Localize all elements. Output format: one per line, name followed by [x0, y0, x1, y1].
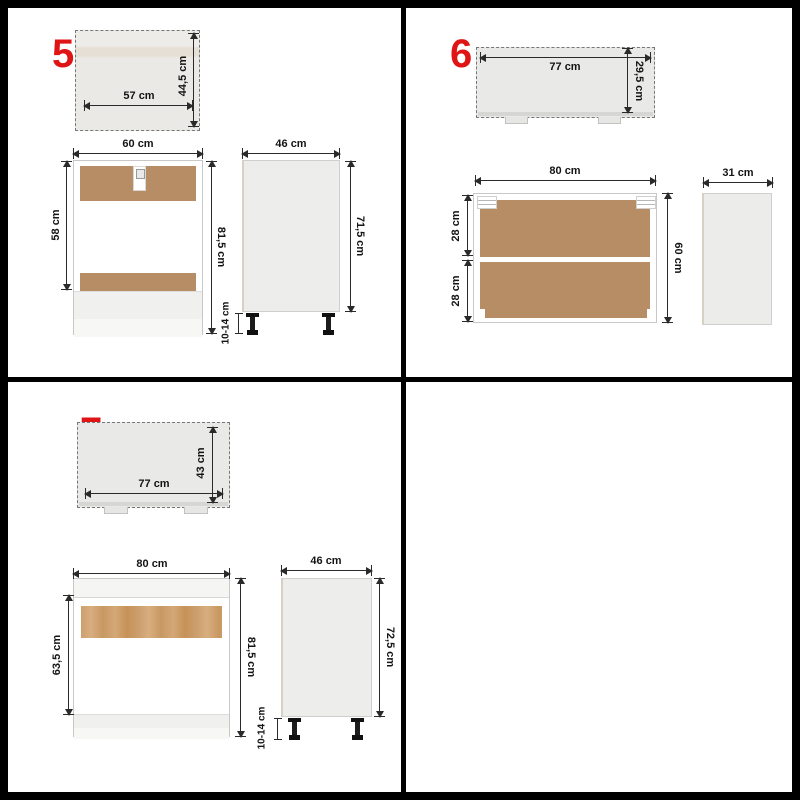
dim-arrow-height-front5	[211, 161, 212, 334]
corner-notch	[480, 309, 485, 318]
dim-bracket-legs7	[277, 718, 278, 740]
adjustable-leg	[322, 313, 335, 335]
dim-label-width-front5: 60 cm	[122, 138, 153, 150]
dim-arrow-height-front7	[240, 578, 241, 737]
dim-label-legs5: 10-14 cm	[221, 302, 232, 345]
dim-label-lower-front6: 28 cm	[450, 275, 462, 306]
diagram-sheet: 5 57 cm 44,5 cm 60 cm 58 cm 81,5 cm 46 c…	[0, 0, 800, 800]
dim-arrow-depth-top6	[627, 48, 628, 113]
dim-label-height-front5: 81,5 cm	[215, 227, 227, 267]
wall-bracket	[505, 117, 528, 124]
adjustable-leg	[351, 718, 364, 740]
divider-horizontal	[8, 377, 792, 382]
dim-label-upper-front6: 28 cm	[450, 210, 462, 241]
front-view-7	[73, 578, 230, 737]
wood-panel-front7	[81, 606, 222, 638]
dim-arrow-depth-side6	[703, 182, 773, 183]
dim-arrow-width-top5	[84, 105, 193, 106]
adjustable-leg	[288, 718, 301, 740]
hinge-plate-icon	[636, 196, 656, 209]
dim-label-depth-top5: 44,5 cm	[177, 56, 189, 96]
dim-label-depth-side6: 31 cm	[722, 167, 753, 179]
dim-label-height-side5: 71,5 cm	[354, 216, 366, 256]
dim-arrow-depth-side7	[281, 570, 372, 571]
adjustable-leg	[246, 313, 259, 335]
dim-arrow-carcass-front5	[66, 161, 67, 290]
dim-arrow-depth-side5	[242, 153, 340, 154]
dim-arrow-height-side7	[379, 578, 380, 717]
front-view-5	[73, 160, 203, 335]
wood-panel-bottom	[80, 273, 196, 291]
front-view-6	[473, 193, 657, 323]
top-view-7	[77, 422, 230, 508]
dim-arrow-width-top6	[480, 57, 651, 58]
side-view-5	[242, 160, 340, 312]
dim-label-width-top6: 77 cm	[549, 61, 580, 73]
dim-arrow-depth-top5	[193, 33, 194, 127]
frame-top	[0, 0, 800, 8]
edge-shadow	[79, 502, 228, 506]
dim-label-depth-side5: 46 cm	[275, 138, 306, 150]
dim-label-carcass-front7: 63,5 cm	[51, 635, 63, 675]
dim-arrow-width-front7	[73, 573, 230, 574]
frame-left	[0, 0, 8, 800]
dim-label-width-top7: 77 cm	[138, 478, 169, 490]
wall-bracket	[104, 507, 128, 514]
dim-arrow-height-front6	[667, 193, 668, 323]
wall-bracket	[598, 117, 621, 124]
divider-vertical	[401, 8, 406, 792]
dim-label-height-side7: 72,5 cm	[384, 627, 396, 667]
dim-label-height-front7: 81,5 cm	[245, 637, 257, 677]
mounting-slot	[133, 166, 146, 191]
dim-label-height-front6: 60 cm	[672, 242, 684, 273]
dim-label-width-front6: 80 cm	[549, 165, 580, 177]
wall-bracket	[184, 507, 208, 514]
dim-label-depth-top7: 43 cm	[195, 447, 207, 478]
dim-arrow-carcass-front7	[68, 595, 69, 715]
dim-arrow-width-front5	[73, 153, 203, 154]
dim-label-legs7: 10-14 cm	[257, 707, 268, 750]
dim-arrow-width-top7	[85, 493, 223, 494]
corner-notch	[647, 309, 652, 318]
panel-number-6: 6	[450, 34, 472, 74]
side-view-7	[281, 578, 372, 717]
dim-arrow-lower-front6	[467, 260, 468, 322]
dim-label-carcass-front5: 58 cm	[50, 209, 62, 240]
dim-arrow-upper-front6	[467, 195, 468, 256]
dim-bracket-legs5	[238, 313, 239, 334]
plinth	[74, 291, 202, 337]
hinge-plate-icon	[477, 196, 497, 209]
dim-label-depth-top6: 29,5 cm	[633, 61, 645, 101]
handle-icon	[136, 169, 145, 179]
dim-label-depth-side7: 46 cm	[310, 555, 341, 567]
dim-arrow-width-front6	[475, 180, 656, 181]
plinth	[74, 714, 229, 739]
dim-label-width-front7: 80 cm	[136, 558, 167, 570]
dim-arrow-depth-top7	[212, 427, 213, 503]
frame-right	[792, 0, 800, 800]
panel-number-5: 5	[52, 34, 74, 74]
wood-compartment-lower	[480, 262, 650, 318]
frame-bottom	[0, 792, 800, 800]
dim-arrow-height-side5	[350, 161, 351, 312]
wood-compartment-upper	[480, 200, 650, 257]
side-view-6	[702, 193, 772, 325]
dim-label-width-top5: 57 cm	[123, 90, 154, 102]
top-rail	[74, 579, 229, 598]
